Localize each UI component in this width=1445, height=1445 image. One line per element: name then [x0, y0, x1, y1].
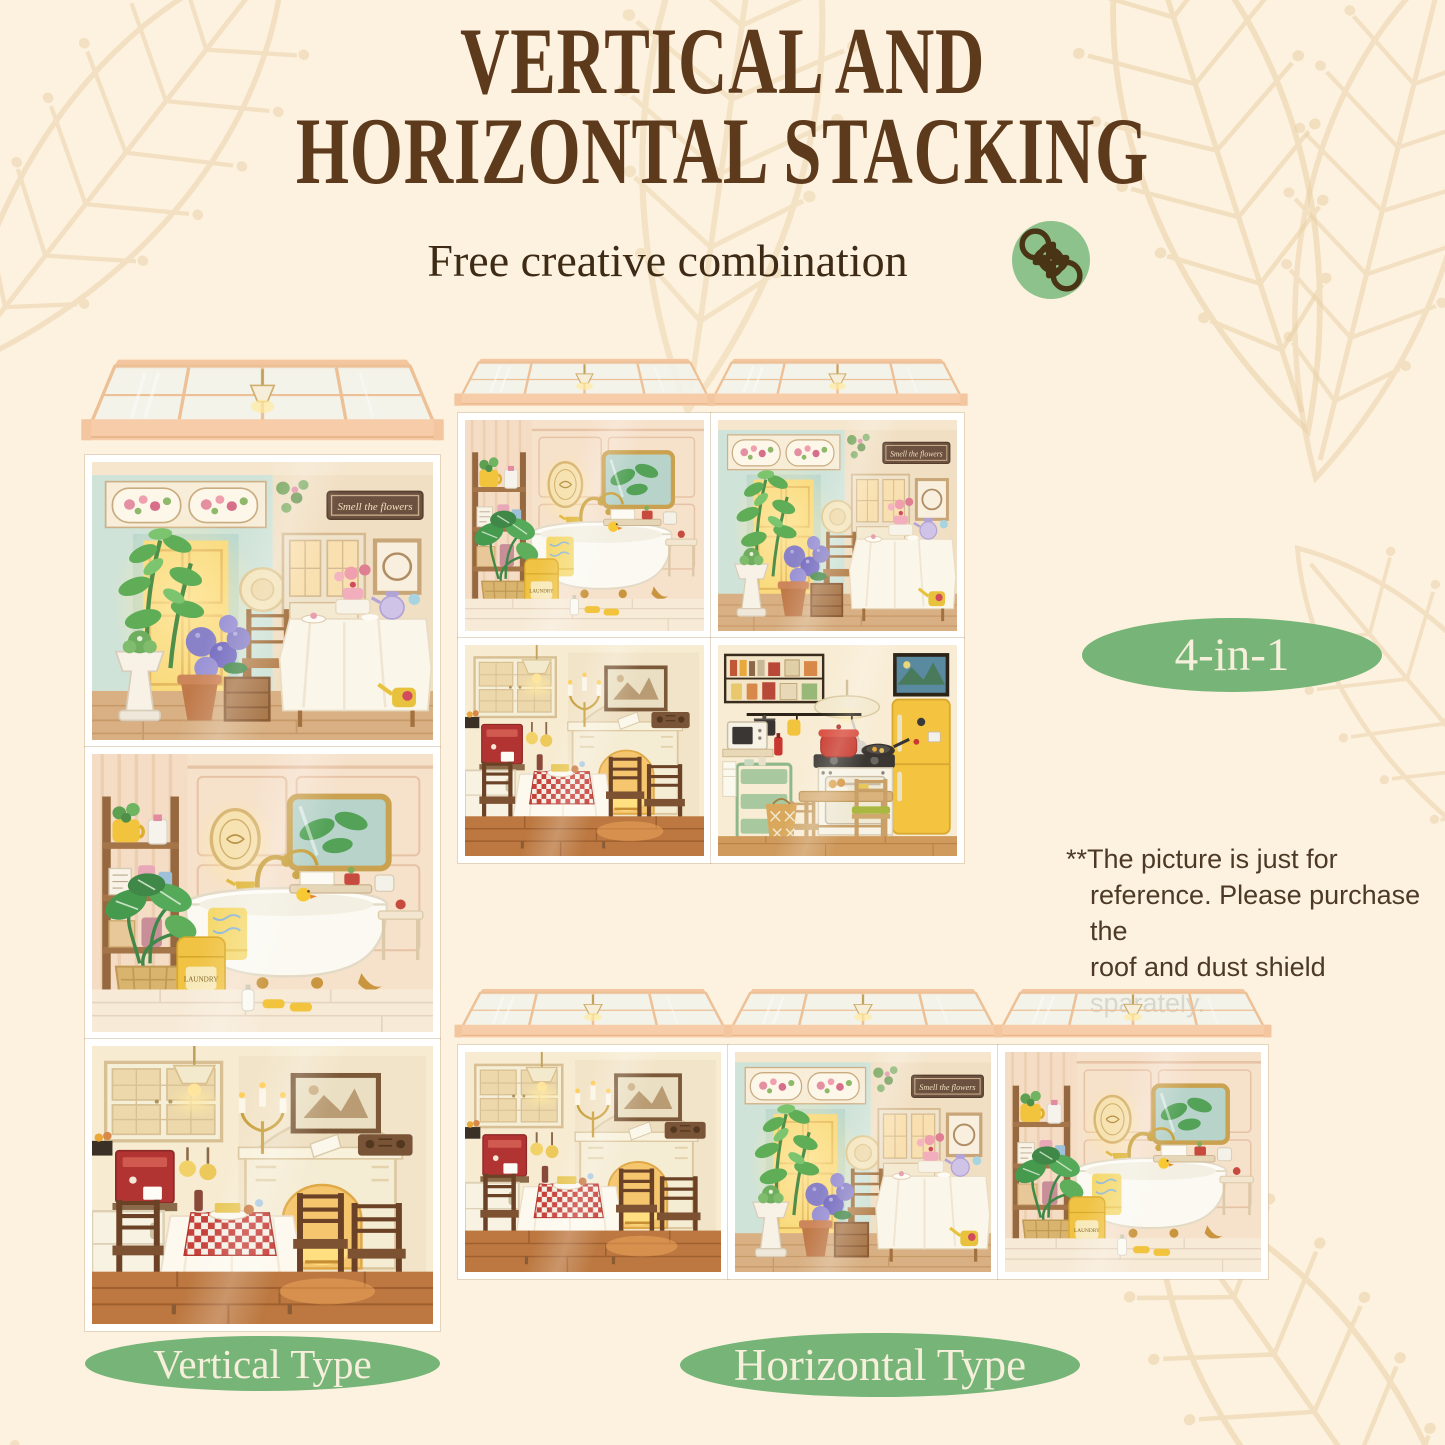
room-photo-bathroom — [998, 1045, 1268, 1279]
clover-icon — [1012, 221, 1090, 299]
room-photo-kitchen-dining — [458, 1045, 728, 1279]
room-photo-bathroom — [85, 747, 440, 1039]
room-photo-kitchen-dining — [458, 638, 711, 863]
roof-row — [458, 358, 964, 416]
glass-roof — [452, 358, 717, 416]
four-in-one-grid-unit — [458, 358, 964, 863]
note-line: reference. Please purchase the — [1066, 878, 1426, 950]
roof-row — [458, 988, 1268, 1048]
vertical-type-badge-label: Vertical Type — [153, 1340, 371, 1388]
marketing-image: VERTICAL AND HORIZONTAL STACKING Free cr… — [0, 0, 1445, 1445]
room-photo-flower-tea-room — [728, 1045, 998, 1279]
room-photo-flower-tea-room — [711, 413, 964, 638]
four-in-one-badge: 4-in-1 — [1082, 618, 1382, 692]
glass-roof — [705, 358, 970, 416]
vertical-type-badge: Vertical Type — [85, 1336, 440, 1391]
glass-roof — [78, 358, 447, 458]
roof-row — [85, 358, 440, 458]
title-line-1: VERTICAL AND — [460, 16, 985, 106]
horizontal-stacking-unit — [458, 988, 1268, 1279]
glass-roof — [992, 988, 1274, 1048]
subtitle: Free creative combination — [0, 234, 1335, 287]
glass-roof — [452, 988, 734, 1048]
room-photo-yellow-kitchen — [711, 638, 964, 863]
room-photo-bathroom — [458, 413, 711, 638]
page-title: VERTICAL AND HORIZONTAL STACKING — [0, 16, 1445, 196]
horizontal-type-badge-label: Horizontal Type — [734, 1339, 1026, 1391]
room-photo-flower-tea-room — [85, 455, 440, 747]
glass-roof — [722, 988, 1004, 1048]
note-line: **The picture is just for — [1066, 842, 1426, 878]
horizontal-type-badge: Horizontal Type — [680, 1333, 1080, 1397]
four-in-one-badge-label: 4-in-1 — [1175, 628, 1290, 682]
room-photo-kitchen-dining — [85, 1039, 440, 1331]
vertical-stacking-unit — [85, 358, 440, 1331]
title-line-2: HORIZONTAL STACKING — [296, 106, 1149, 196]
